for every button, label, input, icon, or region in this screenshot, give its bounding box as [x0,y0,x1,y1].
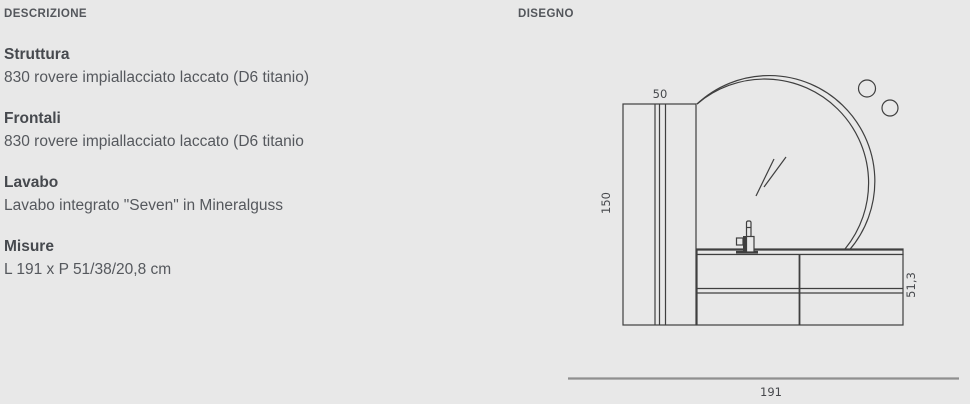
faucet-body [747,237,755,253]
mirror-outer-arc [697,76,875,251]
wall-circle-icon [859,80,876,97]
product-detail-page: { "colors": { "background": "#e8e8e8", "… [0,0,970,404]
dim-cabinet-width: 50 [653,87,668,101]
dim-total-length: 191 [760,385,782,399]
wall-circle-icon [882,100,898,116]
vanity-unit-drawing [697,249,903,325]
technical-drawing: 50 150 51,3 191 [0,0,970,404]
mirror-inner-arc [697,79,869,249]
faucet-lever [747,221,752,237]
dim-cabinet-height: 150 [599,192,613,214]
faucet-spout [737,238,744,245]
mirror-drawing [697,76,875,251]
dim-vanity-depth: 51,3 [904,272,918,298]
tall-cabinet-drawing [623,104,696,325]
faucet-drawing [737,221,755,253]
